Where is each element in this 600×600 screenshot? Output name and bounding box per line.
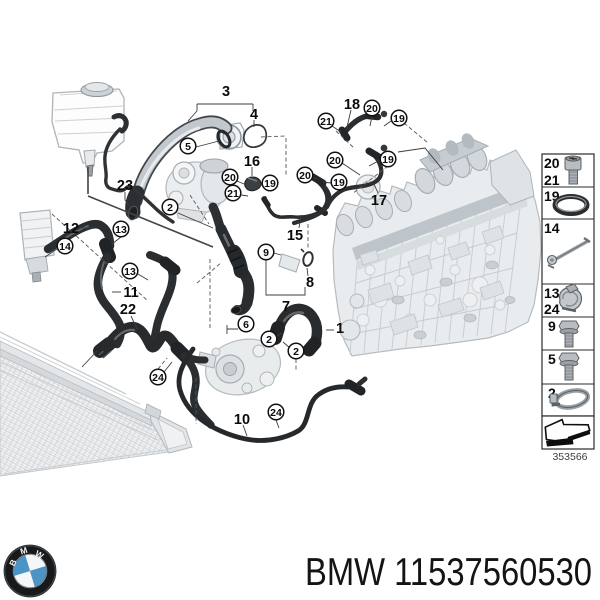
svg-text:20: 20 (329, 155, 341, 167)
svg-text:22: 22 (120, 302, 136, 318)
svg-text:13: 13 (124, 266, 136, 278)
svg-text:19: 19 (393, 113, 405, 125)
svg-text:16: 16 (244, 154, 260, 170)
svg-text:20: 20 (299, 170, 311, 182)
svg-text:17: 17 (371, 193, 387, 209)
svg-text:24: 24 (544, 301, 560, 317)
svg-text:3: 3 (222, 84, 230, 100)
svg-text:4: 4 (250, 107, 258, 123)
svg-text:12: 12 (63, 221, 79, 237)
svg-text:19: 19 (333, 177, 345, 189)
svg-text:21: 21 (544, 172, 560, 188)
svg-text:24: 24 (270, 407, 282, 419)
svg-text:13: 13 (115, 224, 127, 236)
svg-text:14: 14 (59, 241, 71, 253)
svg-text:14: 14 (544, 220, 560, 236)
svg-text:5: 5 (548, 351, 556, 367)
svg-text:2: 2 (293, 346, 299, 358)
svg-text:10: 10 (234, 412, 250, 428)
svg-text:2: 2 (167, 202, 173, 214)
svg-text:18: 18 (344, 97, 360, 113)
svg-text:6: 6 (243, 319, 249, 331)
svg-text:13: 13 (544, 285, 560, 301)
svg-text:21: 21 (320, 116, 332, 128)
svg-text:24: 24 (152, 372, 164, 384)
svg-text:23: 23 (117, 178, 133, 194)
svg-text:1: 1 (336, 321, 344, 337)
svg-text:5: 5 (185, 141, 191, 153)
svg-text:2: 2 (266, 334, 272, 346)
svg-text:20: 20 (224, 172, 236, 184)
svg-text:19: 19 (382, 154, 394, 166)
svg-text:11: 11 (123, 285, 138, 301)
svg-text:7: 7 (282, 299, 290, 315)
svg-text:9: 9 (548, 318, 556, 334)
svg-text:20: 20 (366, 103, 378, 115)
svg-text:20: 20 (544, 155, 560, 171)
svg-text:BMW 11537560530: BMW 11537560530 (305, 551, 592, 594)
svg-text:9: 9 (263, 247, 269, 259)
svg-text:21: 21 (227, 188, 239, 200)
svg-text:19: 19 (264, 178, 276, 190)
svg-text:15: 15 (287, 228, 303, 244)
svg-text:353566: 353566 (552, 451, 587, 463)
svg-text:8: 8 (306, 275, 314, 291)
